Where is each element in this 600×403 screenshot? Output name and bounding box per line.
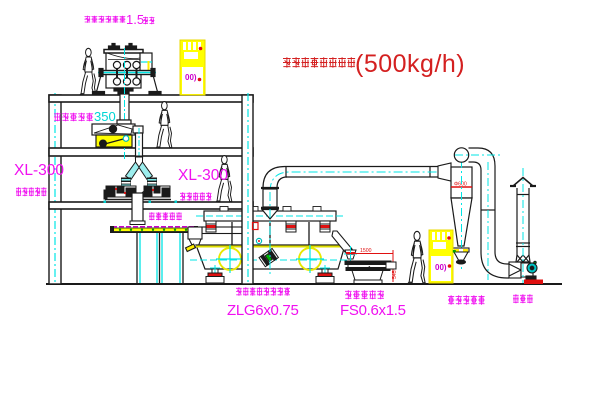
svg-text:00): 00) bbox=[435, 263, 447, 272]
svg-text:(500kg/h): (500kg/h) bbox=[355, 50, 465, 78]
svg-text:ZLG6x0.75: ZLG6x0.75 bbox=[227, 302, 299, 319]
svg-text:350: 350 bbox=[94, 109, 116, 124]
svg-text:Φ600: Φ600 bbox=[454, 182, 467, 188]
svg-text:1.5: 1.5 bbox=[126, 12, 144, 27]
svg-text:00): 00) bbox=[185, 73, 197, 82]
svg-text:545: 545 bbox=[392, 270, 398, 279]
svg-text:XL-300: XL-300 bbox=[178, 167, 228, 184]
svg-text:FS0.6x1.5: FS0.6x1.5 bbox=[340, 302, 406, 319]
svg-text:XL-300: XL-300 bbox=[14, 162, 64, 179]
svg-text:1500: 1500 bbox=[360, 248, 372, 254]
